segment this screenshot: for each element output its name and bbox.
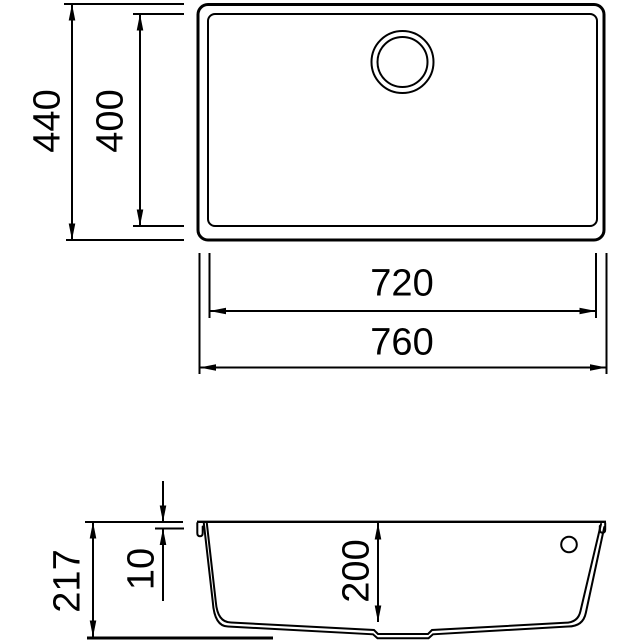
bowl-outer-profile [204, 523, 605, 638]
arrow-right-icon [580, 308, 597, 315]
dim-bowl-height: 200 [335, 523, 381, 622]
arrow-left-icon [210, 308, 227, 315]
drain-outer-circle [372, 31, 434, 93]
sink-technical-drawing: 440 400 720 760 [0, 0, 641, 641]
arrow-down-icon [90, 621, 97, 638]
arrow-down-icon [137, 210, 144, 227]
dim-label-bowl-depth: 400 [89, 89, 131, 152]
arrow-down-icon [375, 606, 382, 623]
arrow-up-icon [375, 523, 382, 540]
dim-label-overall-height: 217 [46, 549, 88, 612]
arrow-up-icon [137, 14, 144, 31]
sink-bowl-opening [208, 14, 597, 226]
arrow-up-icon [160, 529, 167, 546]
dim-label-overall-width: 760 [370, 321, 433, 363]
bowl-inner-profile [207, 523, 601, 634]
dim-bowl-width: 720 [210, 253, 597, 318]
overflow-hole [561, 537, 577, 553]
drain-inner-circle [378, 37, 428, 87]
arrow-up-icon [69, 4, 76, 21]
dim-bowl-depth: 400 [89, 14, 184, 226]
left-rim-lip [197, 523, 202, 536]
arrow-right-icon [590, 364, 607, 371]
section-view [197, 522, 606, 639]
dim-label-bowl-height: 200 [335, 539, 377, 602]
dim-label-bowl-width: 720 [370, 262, 433, 304]
sink-outer-rim [198, 5, 604, 241]
plan-dimensions: 440 400 720 760 [26, 4, 606, 374]
arrow-up-icon [90, 522, 97, 539]
section-dimensions: 217 10 200 [46, 481, 381, 638]
dim-label-overall-depth: 440 [26, 89, 68, 152]
dim-label-rim-offset: 10 [120, 548, 162, 590]
drawing-canvas: 440 400 720 760 [0, 0, 641, 641]
arrow-down-icon [69, 224, 76, 241]
dim-rim-offset: 10 [120, 481, 184, 601]
arrow-down-icon [160, 506, 167, 523]
arrow-left-icon [200, 364, 217, 371]
top-view [198, 5, 604, 241]
